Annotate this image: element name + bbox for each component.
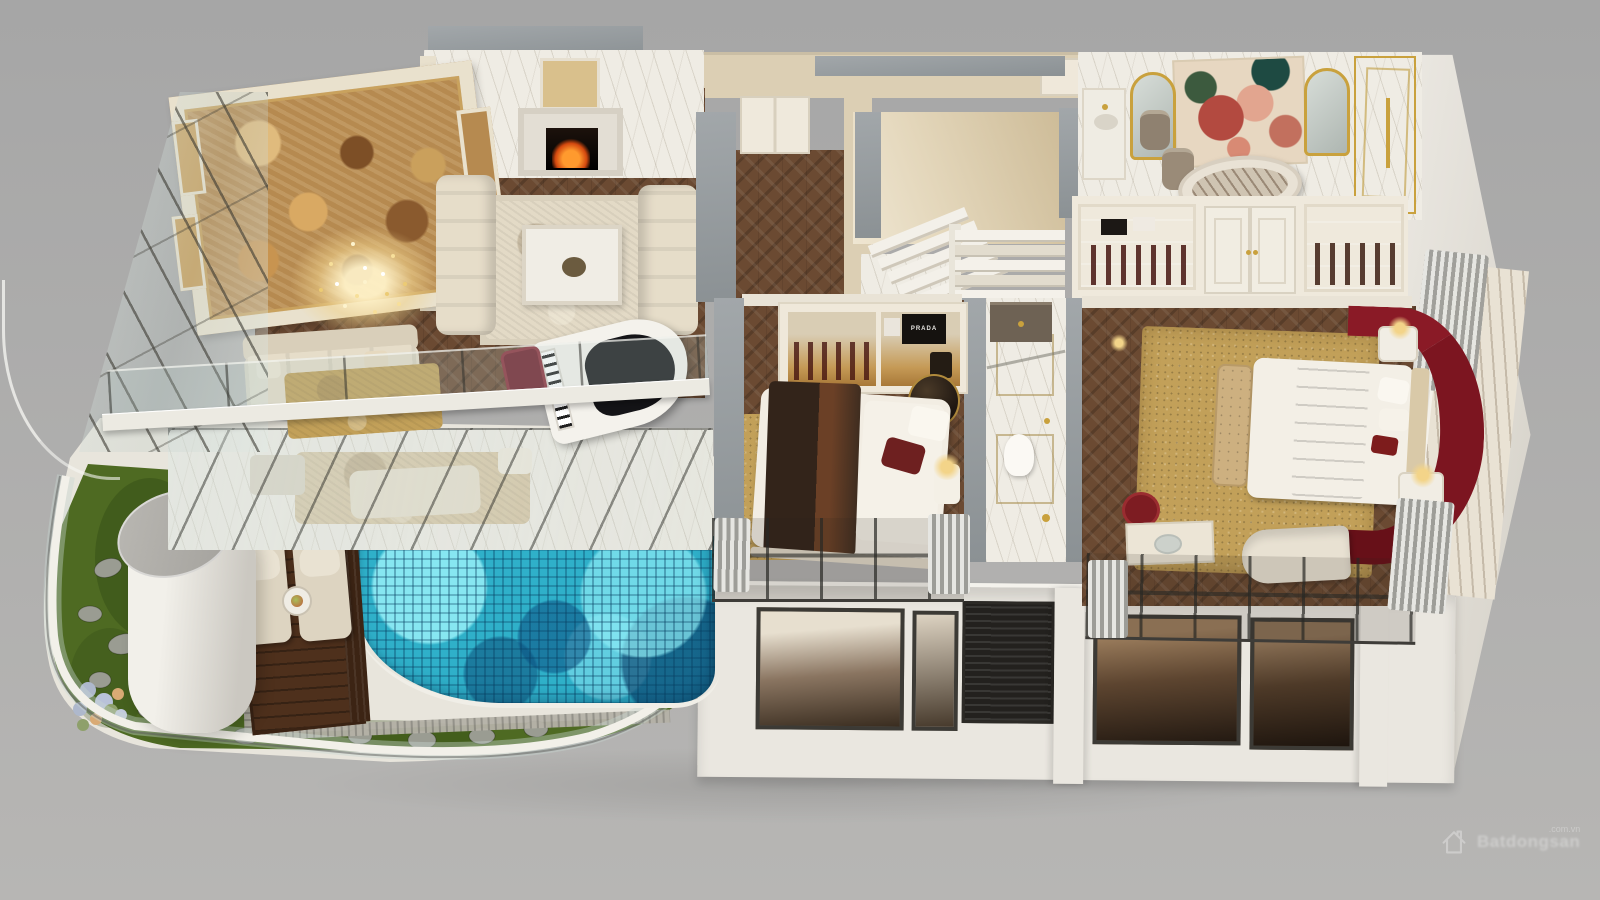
stair-step bbox=[955, 275, 1065, 287]
bedside-lamp bbox=[934, 464, 960, 504]
chandelier-sparkles bbox=[363, 280, 367, 284]
facade-louver-panel bbox=[962, 601, 1055, 724]
storage-box bbox=[1133, 217, 1155, 231]
cut-wall bbox=[696, 112, 736, 302]
penthouse-3d-floorplan-render: PRADA bbox=[0, 0, 1600, 900]
middle-bathroom bbox=[960, 294, 1092, 566]
coffee-table bbox=[522, 225, 622, 305]
gold-tap bbox=[1018, 321, 1024, 327]
stair-step bbox=[955, 230, 1065, 242]
floral-mosaic-mural bbox=[1172, 56, 1308, 169]
watermark: .com.vn Batdongsan bbox=[1438, 824, 1600, 874]
curtain-stack bbox=[1387, 498, 1455, 615]
door-panel bbox=[1214, 218, 1242, 284]
door-panel bbox=[1258, 218, 1286, 284]
gold-shower-bar bbox=[1386, 98, 1390, 168]
arched-gold-mirror bbox=[1304, 68, 1350, 156]
bathroom-floor bbox=[986, 298, 1066, 562]
crystal-chandelier bbox=[285, 222, 445, 342]
storage-box bbox=[1101, 219, 1127, 235]
floor-lamp bbox=[1110, 334, 1128, 352]
white-pillow bbox=[1378, 408, 1409, 432]
shower-enclosure bbox=[1354, 56, 1416, 214]
hallway-door bbox=[740, 96, 810, 154]
fire-flames bbox=[552, 138, 590, 168]
gold-door-handle bbox=[1253, 250, 1258, 255]
swimming-pool bbox=[358, 536, 715, 704]
vanity-counter bbox=[1082, 88, 1126, 180]
prada-box: PRADA bbox=[902, 314, 946, 344]
sofa-left bbox=[436, 175, 496, 335]
white-box bbox=[884, 318, 900, 336]
master-bathroom bbox=[1078, 52, 1422, 220]
gold-accessory bbox=[1042, 514, 1050, 522]
vanity-mirror-tray bbox=[1154, 534, 1183, 555]
wardrobe-divider bbox=[876, 312, 881, 386]
wardrobe-right bbox=[1304, 204, 1404, 292]
master-balcony-glass bbox=[1085, 553, 1416, 645]
lamp-glow bbox=[932, 454, 962, 480]
house-outline-icon bbox=[1438, 824, 1470, 860]
facade-window-1 bbox=[756, 607, 905, 730]
facade-pilaster bbox=[1053, 588, 1085, 784]
striped-bedding bbox=[1291, 364, 1370, 500]
vanity-counter-dark bbox=[990, 302, 1052, 342]
stair-step bbox=[955, 245, 1065, 257]
prada-box-label: PRADA bbox=[911, 326, 937, 332]
watermark-text: .com.vn Batdongsan bbox=[1477, 824, 1580, 852]
sofa-right bbox=[638, 185, 698, 335]
hanging-clothes bbox=[794, 342, 872, 380]
curtain-stack bbox=[928, 514, 970, 594]
basin bbox=[1094, 114, 1118, 130]
hallway bbox=[694, 94, 874, 306]
gold-door-handle bbox=[1246, 250, 1251, 255]
hanging-clothes bbox=[1091, 245, 1187, 285]
fruit-plate bbox=[291, 595, 303, 607]
facade-window-2 bbox=[912, 611, 959, 731]
curtain-stack bbox=[713, 518, 750, 593]
walkin-closet bbox=[1072, 196, 1408, 298]
watermark-brand: Batdongsan bbox=[1477, 832, 1580, 851]
marble-pedestal-stool bbox=[1140, 110, 1170, 150]
deck-side-table bbox=[282, 586, 312, 616]
wall-art-panel bbox=[540, 58, 600, 110]
fireplace-mantle bbox=[518, 108, 623, 176]
closet-double-door bbox=[1204, 206, 1296, 294]
roof-slab-stair bbox=[815, 56, 1065, 76]
nightstand bbox=[1378, 326, 1418, 362]
gold-accessory bbox=[1044, 418, 1050, 424]
wardrobe-left bbox=[1078, 204, 1196, 290]
hanging-clothes bbox=[1315, 243, 1399, 285]
gold-tap bbox=[1102, 104, 1108, 110]
firebox bbox=[546, 128, 598, 170]
stair-step bbox=[955, 260, 1065, 272]
curtain-stack bbox=[1088, 560, 1128, 638]
table-lamp bbox=[1410, 462, 1436, 488]
table-lamp bbox=[1388, 316, 1412, 340]
red-lumbar-pillow bbox=[1370, 434, 1398, 456]
table-centerpiece bbox=[562, 257, 586, 277]
cut-wall bbox=[855, 112, 881, 238]
toilet bbox=[1004, 434, 1034, 476]
